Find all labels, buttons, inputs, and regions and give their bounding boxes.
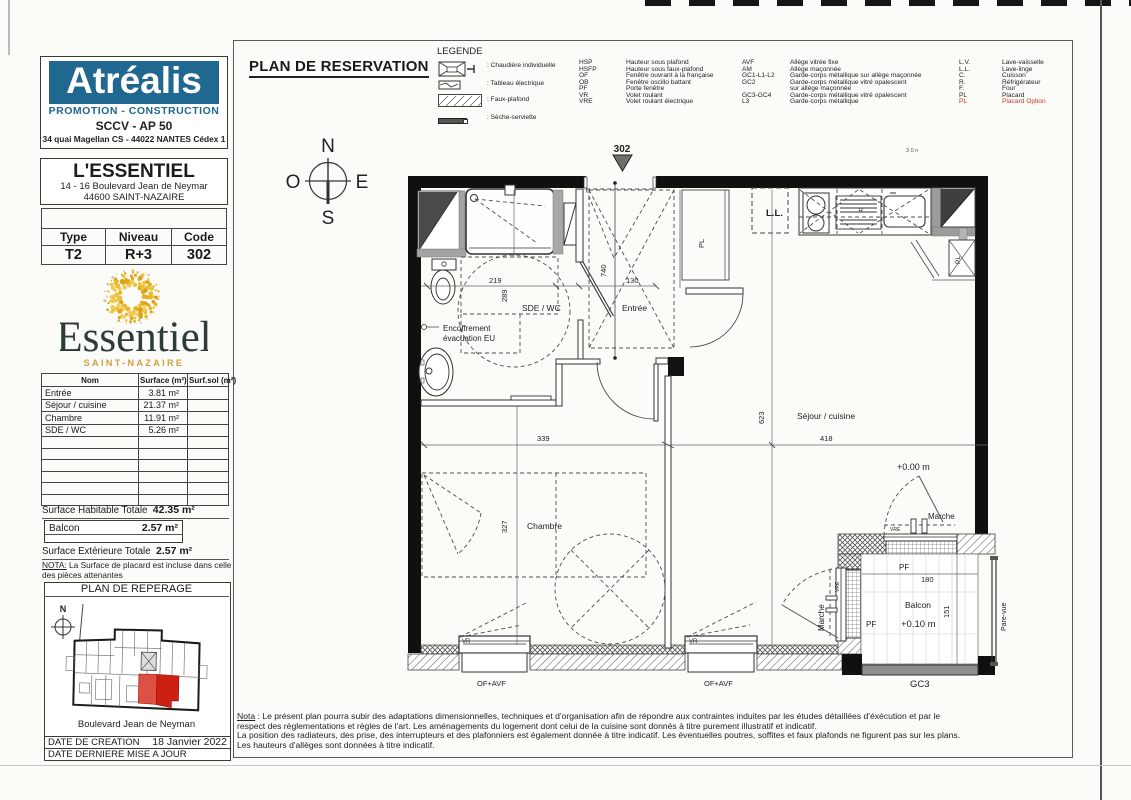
svg-text:GC3: GC3 bbox=[910, 679, 930, 690]
svg-text:Encoffrement: Encoffrement bbox=[443, 324, 491, 333]
svg-text:339: 339 bbox=[537, 434, 550, 443]
svg-text:Entrée: Entrée bbox=[622, 303, 647, 313]
svg-text:PF: PF bbox=[866, 620, 876, 629]
svg-text:302: 302 bbox=[614, 144, 631, 155]
svg-text:OF+AVF: OF+AVF bbox=[704, 679, 733, 688]
svg-text:Marche: Marche bbox=[928, 512, 955, 521]
svg-text:327: 327 bbox=[500, 520, 509, 533]
svg-text:+0.10 m: +0.10 m bbox=[901, 619, 936, 630]
svg-text:VRE: VRE bbox=[835, 581, 841, 592]
svg-text:Chambre: Chambre bbox=[527, 521, 562, 531]
svg-text:180: 180 bbox=[921, 575, 934, 584]
svg-text:130: 130 bbox=[626, 276, 639, 285]
svg-text:Marche: Marche bbox=[817, 604, 826, 631]
svg-text:+0.00 m: +0.00 m bbox=[897, 462, 930, 472]
svg-text:VR: VR bbox=[462, 639, 471, 645]
svg-text:289: 289 bbox=[500, 289, 509, 302]
svg-text:VRE: VRE bbox=[890, 527, 901, 533]
svg-text:623: 623 bbox=[757, 411, 766, 424]
svg-text:VR: VR bbox=[689, 639, 698, 645]
svg-text:219: 219 bbox=[489, 276, 502, 285]
svg-text:Pare-vue: Pare-vue bbox=[1001, 602, 1008, 631]
svg-text:151: 151 bbox=[942, 605, 951, 618]
svg-text:418: 418 bbox=[820, 434, 833, 443]
svg-text:L.L.: L.L. bbox=[766, 208, 783, 219]
svg-text:3 0 n: 3 0 n bbox=[906, 148, 918, 154]
svg-text:OF+AVF: OF+AVF bbox=[477, 679, 506, 688]
svg-text:évacuation EU: évacuation EU bbox=[443, 334, 495, 343]
svg-text:PL: PL bbox=[955, 256, 962, 264]
svg-text:SDE / WC: SDE / WC bbox=[522, 303, 561, 313]
svg-text:PL: PL bbox=[697, 239, 706, 248]
svg-text:Balcon: Balcon bbox=[905, 600, 931, 610]
svg-text:740: 740 bbox=[599, 264, 608, 277]
svg-text:R: R bbox=[859, 208, 863, 214]
svg-text:Séjour / cuisine: Séjour / cuisine bbox=[797, 411, 855, 421]
svg-text:PF: PF bbox=[899, 563, 909, 572]
